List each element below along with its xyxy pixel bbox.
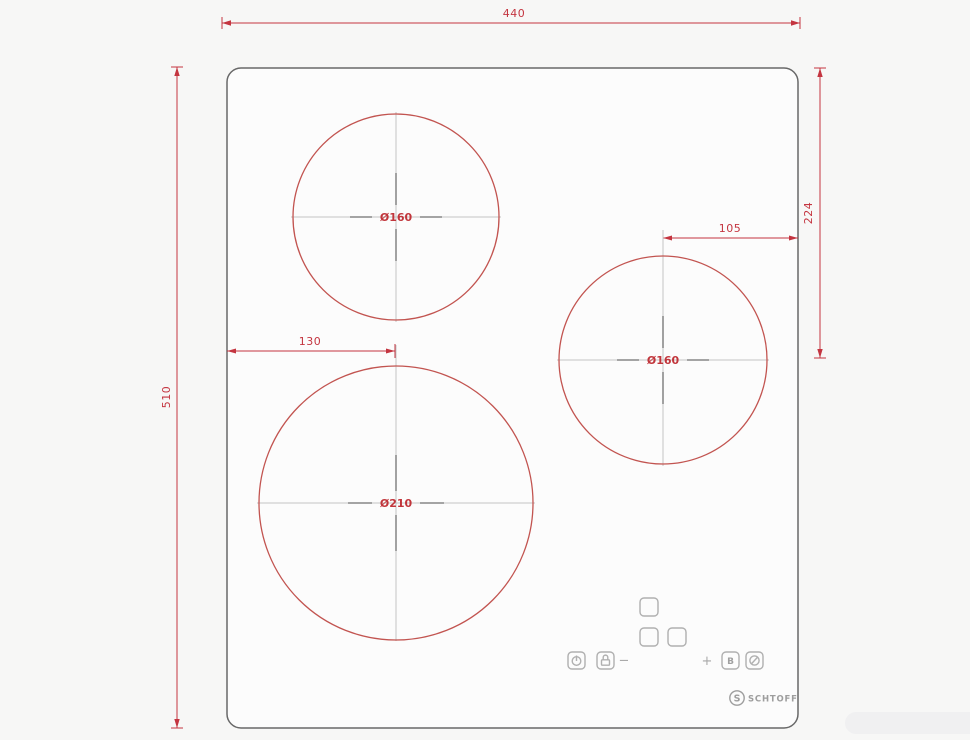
brand-name: SCHTOFF — [748, 695, 798, 705]
zone-top-label: Ø160 — [380, 211, 413, 224]
brand-monogram: S — [734, 694, 741, 705]
dim-label-zone-right-offset: 105 — [719, 222, 742, 235]
arrow-down-icon — [817, 349, 822, 358]
dim-left-height: 510 — [160, 67, 183, 728]
dim-label-right-offset: 224 — [802, 202, 815, 225]
dim-right-offset: 224 — [802, 68, 826, 358]
plus-label: + — [702, 654, 713, 669]
watermark — [845, 712, 970, 734]
dim-label-zone-large-offset: 130 — [299, 335, 322, 348]
booster-label: B — [727, 657, 734, 667]
arrow-up-icon — [174, 67, 179, 76]
dim-label-left-height: 510 — [160, 386, 173, 409]
zone-bottom-large-label: Ø210 — [380, 497, 413, 510]
arrow-left-icon — [222, 20, 231, 25]
minus-label: − — [619, 654, 630, 669]
arrow-right-icon — [791, 20, 800, 25]
dim-label-top-width: 440 — [503, 7, 526, 20]
zone-right-label: Ø160 — [647, 354, 680, 367]
drawing-canvas: 440 510 224 105 130 — [0, 0, 970, 740]
arrow-down-icon — [174, 719, 179, 728]
hob-outline — [227, 68, 798, 728]
dim-top-width: 440 — [222, 7, 800, 29]
hob-dimension-drawing: 440 510 224 105 130 — [0, 0, 970, 740]
arrow-up-icon — [817, 68, 822, 77]
